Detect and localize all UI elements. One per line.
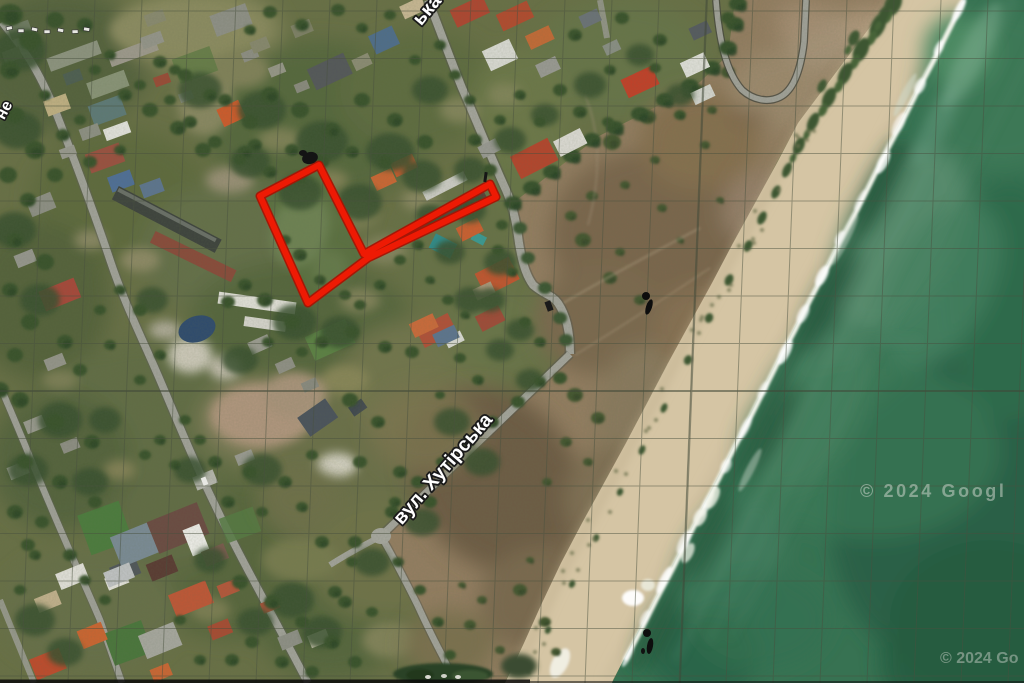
svg-text:© 2024 Googl: © 2024 Googl <box>860 481 1007 501</box>
svg-text:© 2024 Go: © 2024 Go <box>940 650 1019 667</box>
